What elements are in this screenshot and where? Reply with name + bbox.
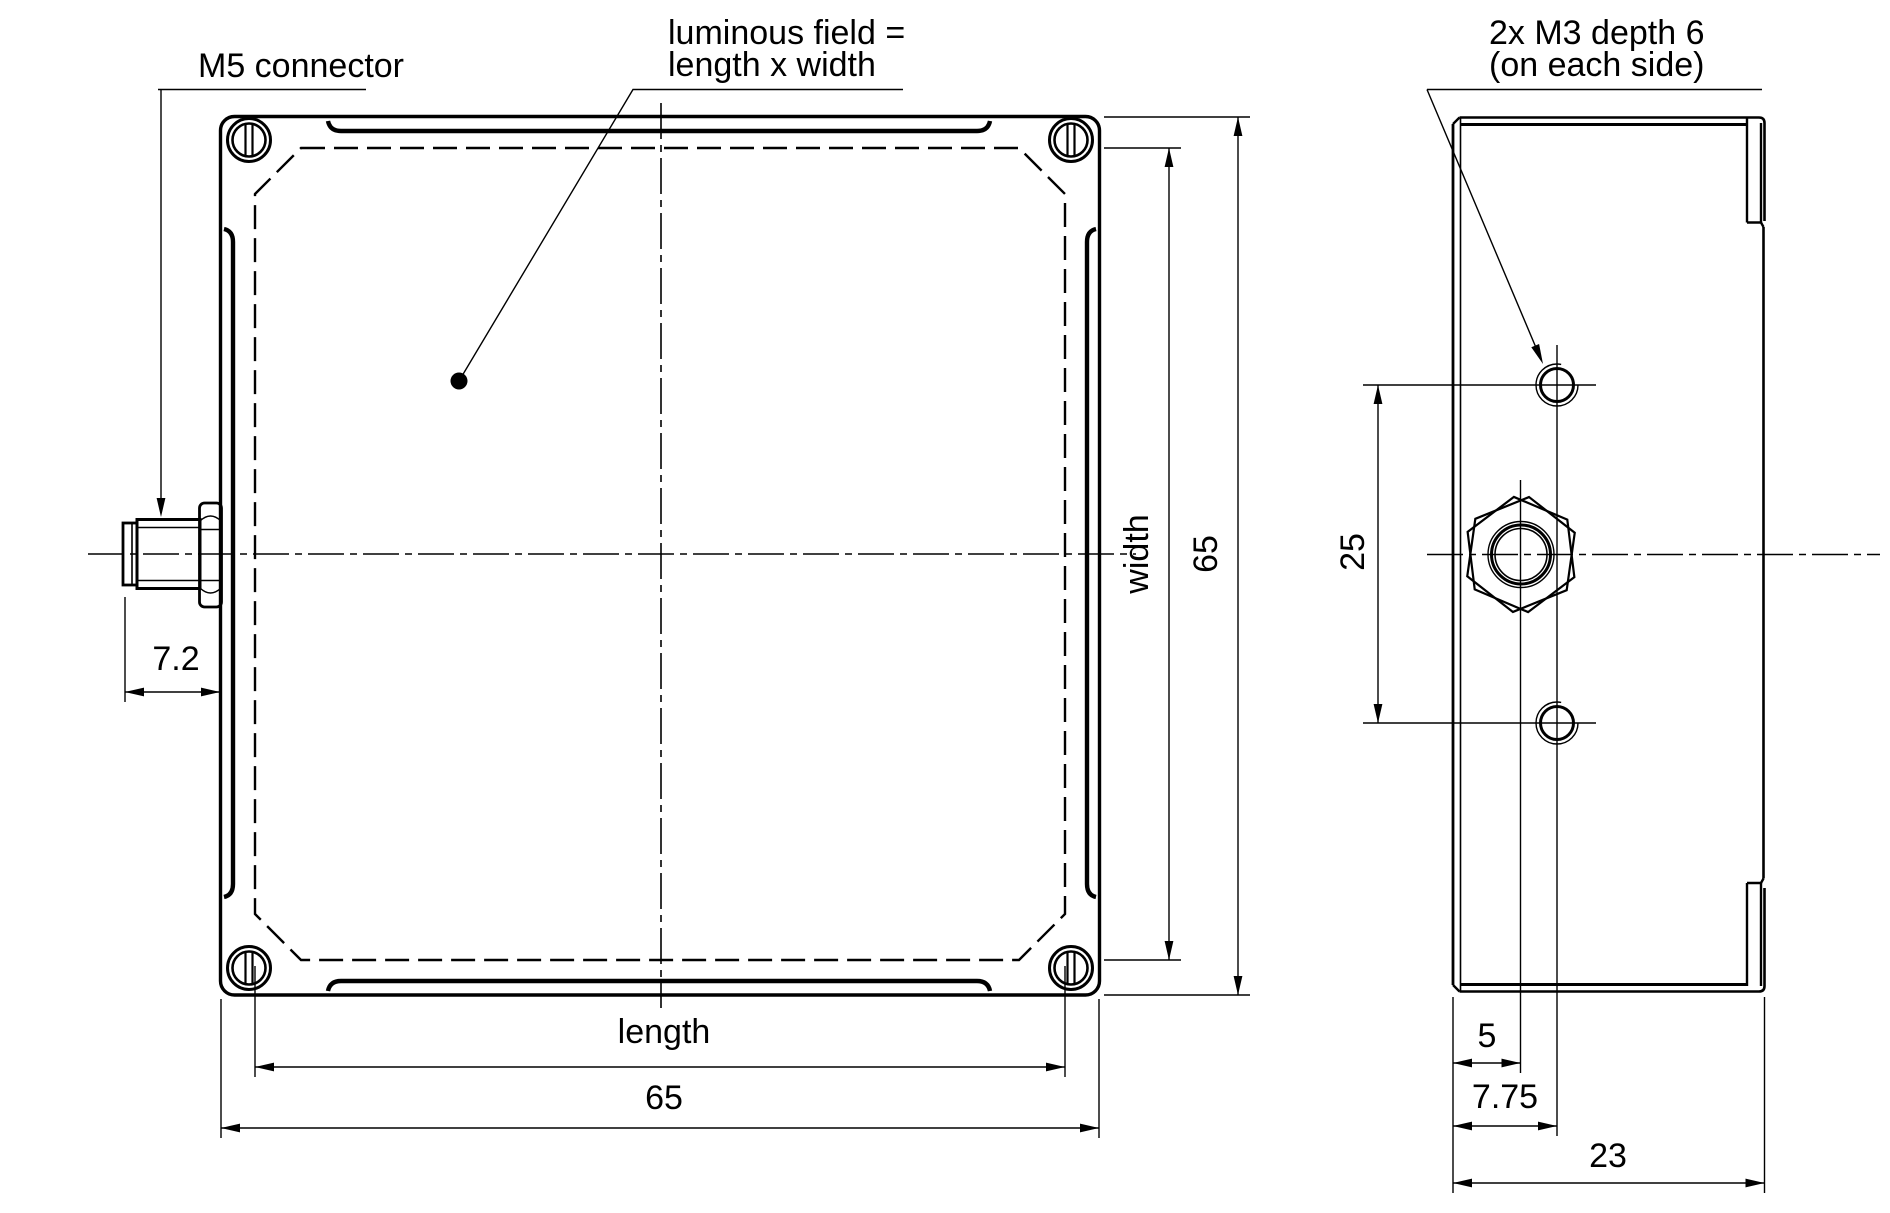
corner-screw-bottom-left: [228, 947, 271, 990]
dim-text-65-right: 65: [1187, 535, 1225, 573]
front-view: 7.2 length 65 width: [88, 14, 1250, 1138]
dim-hole-offset-7-75: 7.75: [1453, 1078, 1557, 1130]
corner-screw-top-right: [1050, 119, 1093, 162]
m3-leader: [1427, 90, 1762, 365]
callout-m5-connector: M5 connector: [198, 47, 404, 85]
callout-luminous-field-line2: length x width: [668, 46, 876, 84]
dim-connector-protrusion: 7.2: [125, 597, 220, 702]
down-arrowhead: [157, 498, 166, 517]
dim-text-23: 23: [1589, 1137, 1627, 1175]
dim-width-label: width: [1104, 148, 1181, 960]
dim-text-5: 5: [1478, 1017, 1497, 1055]
luminous-field-leader: [451, 90, 904, 390]
dim-text-length: length: [618, 1013, 711, 1051]
callout-m3-line2: (on each side): [1489, 46, 1704, 84]
side-view: 25 5 7.75 23 2x M3 depth 6 (on each si: [1334, 14, 1880, 1193]
right-edge-groove: [1087, 229, 1096, 897]
dim-hole-spacing-25: 25: [1334, 385, 1382, 723]
drawing-svg: 7.2 length 65 width: [0, 0, 1890, 1213]
top-edge-groove: [328, 121, 990, 131]
m5-connector-leader: [157, 90, 366, 518]
dim-text-width: width: [1118, 514, 1156, 594]
dim-text-25: 25: [1334, 533, 1372, 571]
dim-text-7-75: 7.75: [1472, 1078, 1538, 1116]
corner-screw-top-left: [228, 119, 271, 162]
dim-text-7-2: 7.2: [152, 640, 199, 678]
panel-outline: [221, 117, 1100, 996]
m5-connector-profile: [123, 503, 222, 607]
left-edge-groove: [224, 229, 233, 897]
bottom-edge-groove: [328, 981, 990, 991]
corner-screw-bottom-right: [1050, 947, 1093, 990]
leader-arrowhead: [1531, 344, 1543, 364]
dim-text-65-bottom: 65: [645, 1079, 683, 1117]
technical-drawing-canvas: 7.2 length 65 width: [0, 0, 1890, 1213]
